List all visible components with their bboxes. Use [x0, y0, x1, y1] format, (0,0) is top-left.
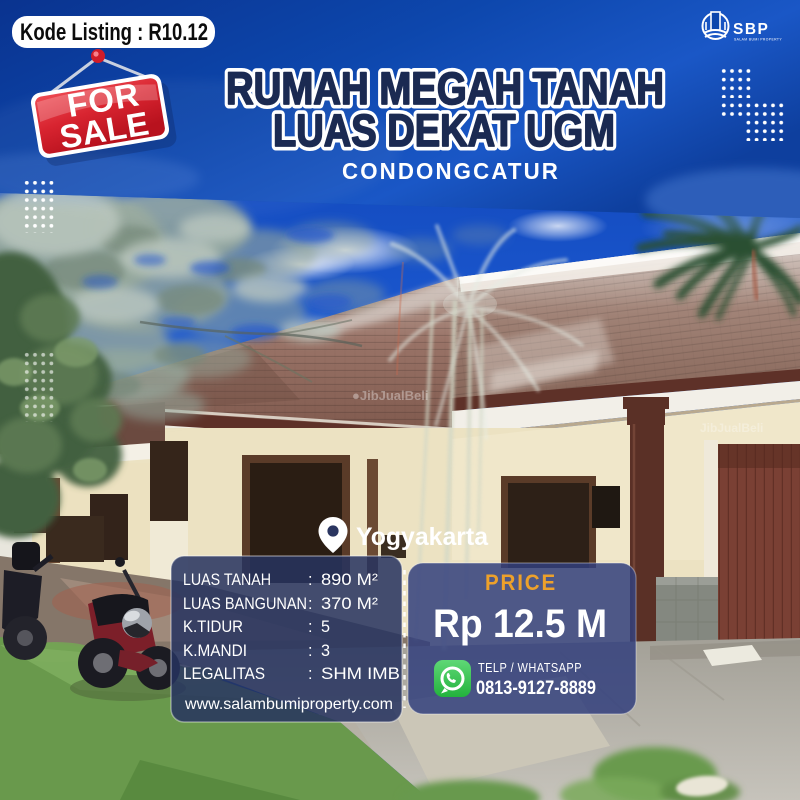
svg-text:SHM IMB: SHM IMB [321, 665, 400, 683]
svg-text::: : [308, 665, 313, 683]
svg-text:890 M²: 890 M² [321, 571, 379, 589]
svg-text:3: 3 [321, 642, 330, 660]
svg-text:LUAS DEKAT UGM: LUAS DEKAT UGM [273, 105, 615, 156]
svg-text:PRICE: PRICE [485, 570, 557, 595]
svg-text:CONDONGCATUR: CONDONGCATUR [342, 158, 560, 184]
svg-text:JibJualBeli: JibJualBeli [700, 421, 763, 435]
svg-text:LUAS BANGUNAN: LUAS BANGUNAN [183, 595, 307, 613]
svg-text:0813-9127-8889: 0813-9127-8889 [476, 678, 596, 699]
svg-text:www.salambumiproperty.com: www.salambumiproperty.com [184, 696, 393, 713]
svg-text:●JibJualBeli: ●JibJualBeli [352, 388, 429, 403]
svg-text:Yogyakarta: Yogyakarta [356, 523, 489, 551]
svg-text:LUAS TANAH: LUAS TANAH [183, 571, 271, 589]
svg-text:LEGALITAS: LEGALITAS [183, 665, 265, 683]
svg-text:K.MANDI: K.MANDI [183, 642, 247, 660]
svg-text:Rp 12.5 M: Rp 12.5 M [433, 602, 607, 646]
svg-text:TELP / WHATSAPP: TELP / WHATSAPP [478, 661, 582, 675]
svg-text:SBP: SBP [733, 21, 769, 38]
svg-text:K.TIDUR: K.TIDUR [183, 618, 243, 636]
svg-text:370 M²: 370 M² [321, 595, 379, 613]
svg-text::: : [308, 595, 313, 613]
svg-text:5: 5 [321, 618, 330, 636]
svg-text:Kode Listing : R10.12: Kode Listing : R10.12 [20, 19, 208, 46]
svg-text:SALAM BUMI PROPERTY: SALAM BUMI PROPERTY [734, 38, 782, 42]
svg-text::: : [308, 642, 313, 660]
svg-text::: : [308, 571, 313, 589]
svg-text::: : [308, 618, 313, 636]
